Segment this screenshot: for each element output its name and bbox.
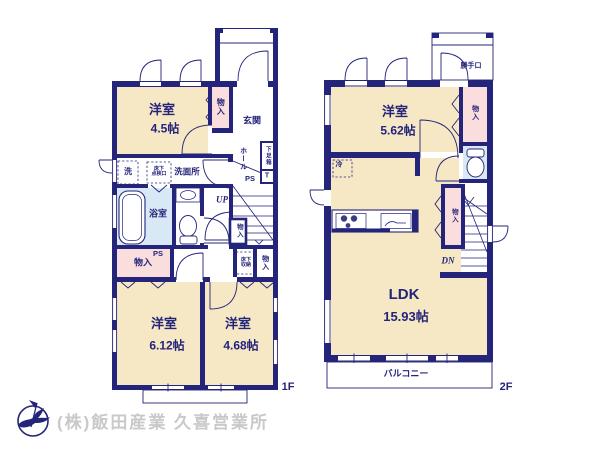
company-logo-compass-icon	[18, 400, 50, 436]
stairs-dn-label: DN	[442, 256, 455, 265]
balcony-label: バルコニー	[384, 369, 429, 378]
floor-plan: 洋室 4.5帖 物入 玄関 ホール 下足箱 T PS 洗 床下点検口 洗面所 浴…	[0, 0, 600, 450]
bedroom2-name: 洋室	[151, 317, 177, 331]
closet-right-label: 物入	[261, 255, 268, 271]
washer-label: 洗	[124, 168, 132, 176]
floor1-label: 1F	[282, 382, 295, 394]
toilet-marker: T	[265, 172, 269, 179]
ldk-name: LDK	[389, 287, 420, 303]
washroom-label: 洗面所	[174, 168, 200, 177]
ps-lower-label: PS	[153, 250, 163, 258]
stairs-up-label: UP	[216, 195, 228, 204]
closet-upper-label: 物入	[216, 98, 224, 116]
bedroom3-size: 4.68帖	[223, 340, 258, 353]
closet-top-label: 物入	[471, 105, 478, 121]
ldk-size: 15.93帖	[383, 310, 429, 324]
closet-stairs-label: 物入	[235, 224, 242, 239]
bedroom2-size: 6.12帖	[149, 340, 184, 353]
underfloor-hatch-label: 床下点検口	[151, 167, 166, 178]
company-name: (株)飯田産業 久喜営業所	[57, 408, 269, 433]
bedroom1-name: 洋室	[149, 103, 175, 117]
bedroom1-size: 4.5帖	[151, 123, 180, 136]
hall-label: ホール	[239, 147, 246, 171]
bedroom2f-name: 洋室	[382, 105, 408, 119]
closet-mid-label: 物入	[450, 209, 457, 224]
bedroom3-name: 洋室	[225, 317, 251, 331]
fridge-label: 冷	[336, 161, 343, 168]
floor2-label: 2F	[500, 382, 513, 394]
back-door-label: 勝手口	[461, 62, 482, 69]
ps-upper-label: PS	[245, 175, 255, 183]
bathroom-label: 浴室	[149, 209, 167, 218]
underfloor-storage-label: 床下収納	[241, 258, 251, 269]
entrance-label: 玄関	[243, 116, 261, 125]
closet-left-label: 物入	[134, 258, 152, 267]
shoe-box-label: 下足箱	[264, 146, 270, 166]
bedroom2f-size: 5.62帖	[380, 125, 415, 138]
